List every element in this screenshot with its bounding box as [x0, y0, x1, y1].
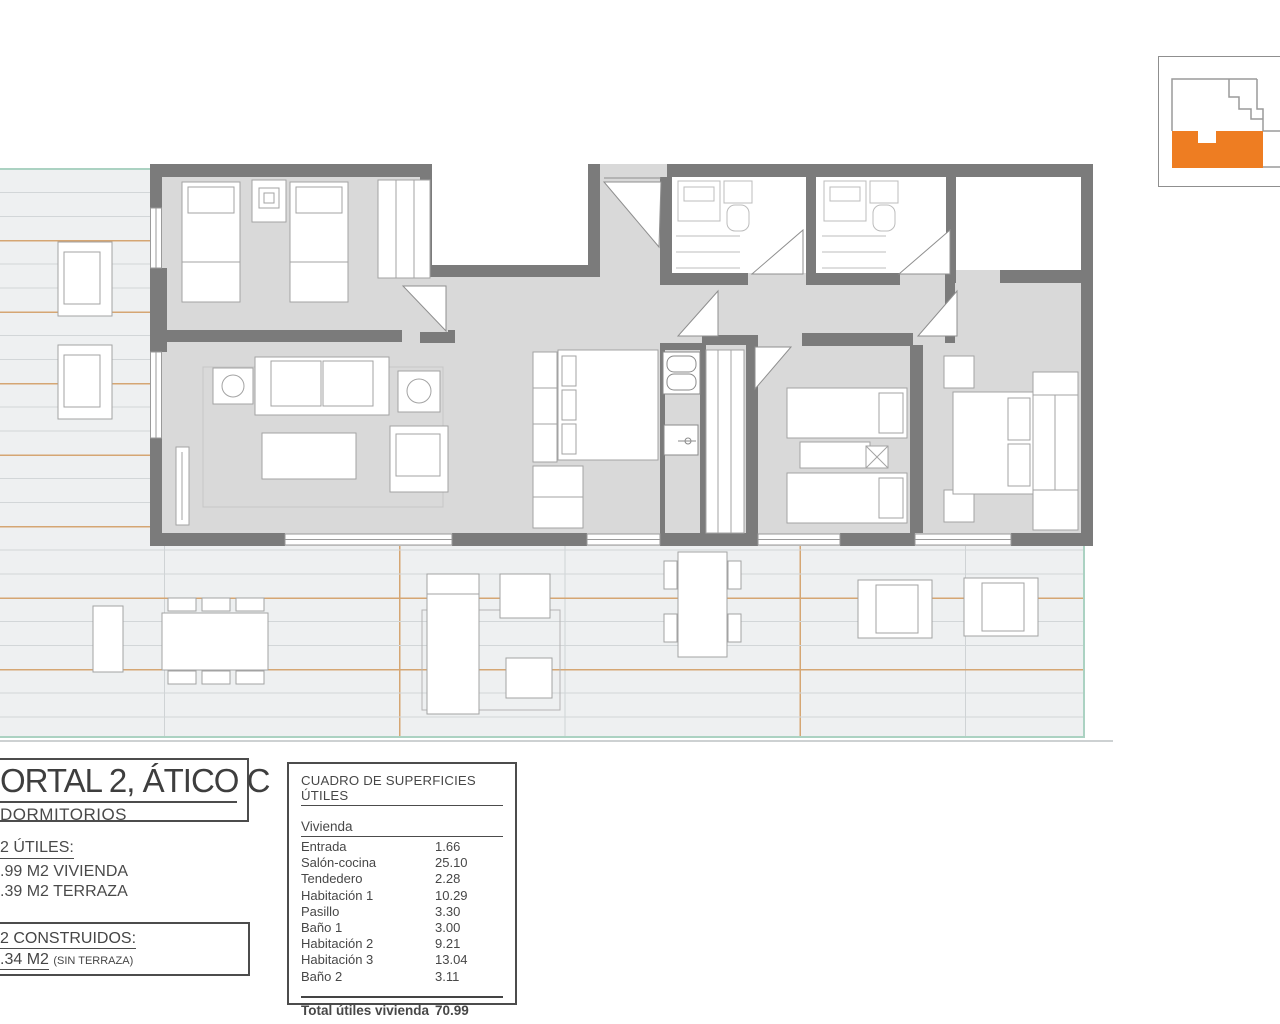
room-area-value: 3.00 [435, 920, 503, 936]
surface-table-section: Vivienda [301, 819, 503, 837]
title-block: ORTAL 2, ÁTICO C DORMITORIOS [0, 758, 249, 822]
room-area-value: 3.11 [435, 969, 503, 985]
room-label: Baño 2 [301, 969, 435, 985]
table-row: Entrada1.66 [301, 839, 503, 855]
keyplan-unit-highlight [1172, 131, 1263, 168]
total-value: 70.99 [435, 1003, 503, 1018]
utiles-line-vivienda: .99 M2 VIVIENDA [0, 863, 128, 880]
construidos-heading: 2 CONSTRUIDOS: [0, 930, 136, 949]
room-label: Habitación 1 [301, 888, 435, 904]
surface-table-title: CUADRO DE SUPERFICIES ÚTILES [301, 773, 503, 806]
room-area-value: 3.30 [435, 904, 503, 920]
table-row: Baño 13.00 [301, 920, 503, 936]
table-row: Baño 23.11 [301, 969, 503, 985]
room-label: Baño 1 [301, 920, 435, 936]
utiles-heading: 2 ÚTILES: [0, 838, 74, 859]
table-row: Salón-cocina25.10 [301, 855, 503, 871]
room-label: Habitación 3 [301, 952, 435, 968]
total-label: Total útiles vivienda [301, 1003, 435, 1018]
construidos-note: (SIN TERRAZA) [53, 955, 133, 967]
table-row: Tendedero2.28 [301, 871, 503, 887]
table-row: Habitación 29.21 [301, 936, 503, 952]
construidos-value: .34 M2 [0, 951, 49, 970]
plan-subtitle: DORMITORIOS [0, 805, 237, 825]
surface-table-total: Total útiles vivienda 70.99 [301, 996, 503, 1018]
room-area-value: 10.29 [435, 888, 503, 904]
keyplan [1158, 56, 1280, 187]
sheet: ORTAL 2, ÁTICO C DORMITORIOS 2 ÚTILES: .… [0, 0, 1280, 1024]
room-label: Pasillo [301, 904, 435, 920]
utiles-line-terraza: .39 M2 TERRAZA [0, 883, 128, 900]
room-area-value: 2.28 [435, 871, 503, 887]
room-area-value: 9.21 [435, 936, 503, 952]
room-label: Entrada [301, 839, 435, 855]
room-label: Habitación 2 [301, 936, 435, 952]
surface-table: CUADRO DE SUPERFICIES ÚTILES Vivienda En… [287, 762, 517, 1005]
divider [0, 740, 1113, 742]
keyplan-drawing [1159, 57, 1280, 186]
room-label: Tendedero [301, 871, 435, 887]
table-row: Habitación 110.29 [301, 888, 503, 904]
construidos-block: 2 CONSTRUIDOS: .34 M2 (SIN TERRAZA) [0, 922, 250, 976]
room-area-value: 1.66 [435, 839, 503, 855]
room-area-value: 25.10 [435, 855, 503, 871]
table-row: Habitación 313.04 [301, 952, 503, 968]
room-label: Salón-cocina [301, 855, 435, 871]
floor-plan [0, 160, 1110, 752]
utiles-block: 2 ÚTILES: .99 M2 VIVIENDA .39 M2 TERRAZA [0, 838, 128, 902]
plan-title: ORTAL 2, ÁTICO C [0, 762, 237, 803]
surface-table-rows: Entrada1.66Salón-cocina25.10Tendedero2.2… [301, 839, 503, 985]
room-area-value: 13.04 [435, 952, 503, 968]
table-row: Pasillo3.30 [301, 904, 503, 920]
